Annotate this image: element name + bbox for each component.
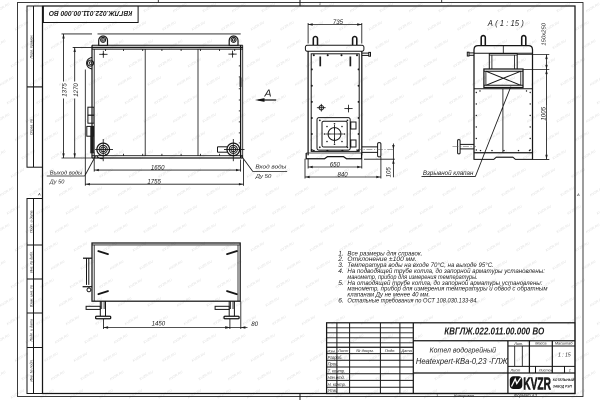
svg-text:1450: 1450 <box>152 321 166 328</box>
svg-text:1005: 1005 <box>541 106 548 120</box>
svg-text:Справ. №: Справ. № <box>29 119 33 135</box>
svg-text:А: А <box>576 192 580 197</box>
svg-text:Взрывной клапан: Взрывной клапан <box>423 169 474 177</box>
svg-text:Пров.: Пров. <box>328 362 339 367</box>
svg-text:150х250: 150х250 <box>542 22 548 45</box>
svg-text:Взам. инв. №: Взам. инв. № <box>29 285 33 307</box>
svg-text:КВГЛЖ.022.011.00.000 ВО: КВГЛЖ.022.011.00.000 ВО <box>444 326 544 337</box>
svg-text:КОТЕЛЬНЫЙ: КОТЕЛЬНЫЙ <box>553 377 575 382</box>
svg-text:6.: 6. <box>338 298 344 305</box>
svg-text:Разраб.: Разраб. <box>328 355 343 360</box>
svg-text:Перв. примен.: Перв. примен. <box>29 35 33 59</box>
svg-text:1270: 1270 <box>73 83 80 97</box>
svg-text:Heatexpert-КВа-0,23 -ГЛЖ: Heatexpert-КВа-0,23 -ГЛЖ <box>416 357 508 366</box>
svg-text:Изм.: Изм. <box>327 348 336 353</box>
svg-text:Дата: Дата <box>400 348 412 353</box>
svg-text:Вход воды: Вход воды <box>255 164 286 170</box>
svg-text:ЗАВОД РЭП: ЗАВОД РЭП <box>553 384 572 389</box>
svg-text:1: 1 <box>436 394 438 398</box>
svg-text:Нач.отд.: Нач.отд. <box>328 375 345 380</box>
svg-text:1: 1 <box>569 368 571 372</box>
svg-text:КВГЛЖ.022.011.00.000 ВО: КВГЛЖ.022.011.00.000 ВО <box>49 9 133 18</box>
svg-text:Ду 50: Ду 50 <box>49 179 65 185</box>
svg-text:Подп.: Подп. <box>385 348 396 353</box>
svg-text:Остальные требования по ОСТ 10: Остальные требования по ОСТ 108.030.133-… <box>347 297 478 305</box>
svg-text:Лист: Лист <box>337 348 349 353</box>
svg-text:Подп. и дата: Подп. и дата <box>29 210 33 233</box>
svg-text:1 : 15: 1 : 15 <box>558 352 571 358</box>
svg-text:735: 735 <box>333 19 344 26</box>
svg-text:А ( 1 : 15 ): А ( 1 : 15 ) <box>487 19 524 28</box>
svg-text:Лит.: Лит. <box>513 342 523 346</box>
svg-text:А: А <box>37 192 41 197</box>
svg-text:Инв. № подл.: Инв. № подл. <box>29 359 33 381</box>
svg-text:Утв.: Утв. <box>328 388 337 393</box>
svg-text:650: 650 <box>330 161 341 168</box>
svg-text:1650: 1650 <box>151 165 165 172</box>
svg-text:Ду 50: Ду 50 <box>255 174 273 180</box>
svg-text:Масштаб: Масштаб <box>555 342 574 346</box>
svg-text:А: А <box>263 87 271 99</box>
svg-text:105: 105 <box>386 167 393 178</box>
svg-text:4.: 4. <box>338 268 344 275</box>
svg-text:1375: 1375 <box>61 83 68 97</box>
svg-text:Выход воды: Выход воды <box>50 170 83 176</box>
svg-text:Листов: Листов <box>538 368 553 372</box>
svg-text:KVZR: KVZR <box>523 374 551 394</box>
svg-text:Масса: Масса <box>535 342 546 346</box>
svg-text:5.: 5. <box>338 280 344 287</box>
svg-text:Лист: Лист <box>510 369 521 373</box>
svg-text:Подп. и дата: Подп. и дата <box>29 319 33 342</box>
svg-text:840: 840 <box>338 171 349 178</box>
svg-text:Н. контр.: Н. контр. <box>328 382 346 387</box>
svg-text:80: 80 <box>251 321 258 328</box>
svg-text:1755: 1755 <box>147 178 161 185</box>
svg-text:Инв. № дубл.: Инв. № дубл. <box>29 251 33 273</box>
svg-text:№ докум.: № докум. <box>356 348 374 353</box>
svg-text:Котел водогрейный: Котел водогрейный <box>430 346 497 355</box>
svg-text:Т. контр.: Т. контр. <box>328 368 346 373</box>
